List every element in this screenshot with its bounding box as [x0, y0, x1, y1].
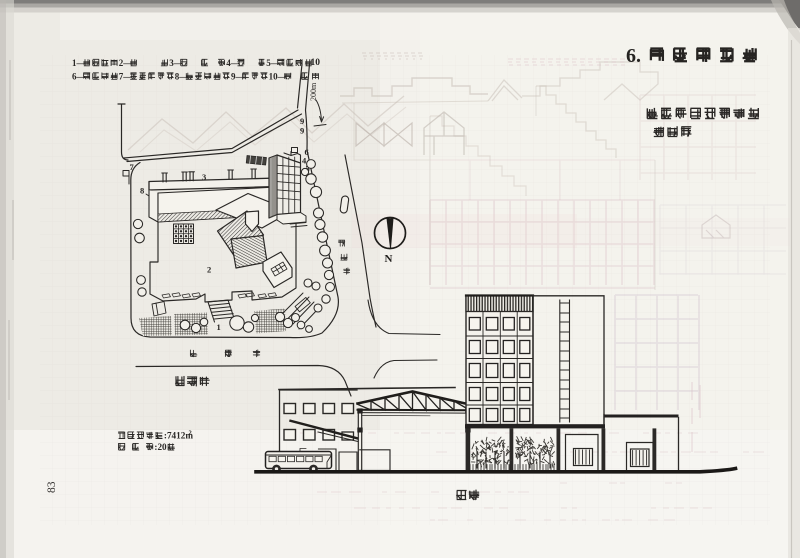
- svg-text:10: 10: [311, 58, 321, 68]
- svg-text::20: :20: [154, 442, 167, 452]
- svg-text:8: 8: [140, 186, 144, 196]
- svg-text:N: N: [385, 253, 393, 265]
- svg-text:6.: 6.: [626, 45, 641, 67]
- svg-text:2: 2: [189, 430, 192, 437]
- svg-text:1: 1: [217, 322, 221, 332]
- svg-text:2: 2: [207, 265, 211, 275]
- svg-text:9: 9: [300, 126, 304, 136]
- svg-text:83: 83: [46, 481, 58, 493]
- svg-text:9: 9: [300, 116, 304, 126]
- svg-text:200m: 200m: [309, 82, 318, 101]
- svg-text:3: 3: [202, 172, 206, 182]
